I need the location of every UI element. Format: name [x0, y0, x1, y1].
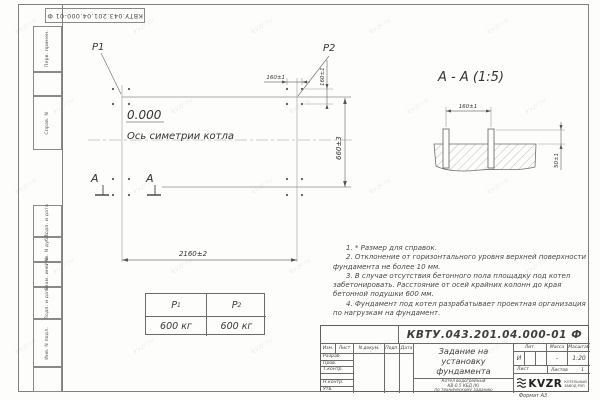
tb-scale-value: 1:20	[567, 352, 590, 366]
section-view-title: А - А (1:5)	[437, 70, 504, 85]
tb-logo-text: KVZR	[528, 378, 562, 390]
p2-label: P2	[323, 43, 335, 54]
note-1: 1. * Размер для справок.	[333, 244, 591, 253]
tb-col-divider-3	[399, 354, 400, 393]
symmetry-axis-label: Ось симетрии котла	[127, 131, 234, 142]
loads-table: P1 P2 600 кг 600 кг	[145, 293, 265, 335]
tb-col-divider-2	[384, 354, 385, 393]
section-mark-a-left: А	[90, 172, 99, 185]
tb-logo-area: KVZR КОТЕЛЬНЫЙ ЗАВОД РЭП	[513, 374, 590, 393]
title-block-topleft-empty	[321, 326, 398, 344]
p1-leader-line	[101, 53, 121, 94]
tb-document-title: Задание на установку фундамента	[413, 344, 513, 378]
note-2: 2. Отклонение от горизонтального уровня …	[333, 253, 591, 272]
title-block: КВТУ.043.201.04.000-01 Ф Изм. Лист N док…	[320, 325, 589, 392]
elevation-label: 0.000	[127, 108, 162, 122]
loads-header-p2: P2	[206, 294, 266, 316]
loads-value-p2: 600 кг	[206, 316, 266, 336]
tb-sheet-label: Лист	[513, 366, 547, 374]
tb-sheets-label: Листов	[551, 368, 568, 373]
tb-header-data: Дата	[399, 344, 413, 354]
tb-logo-caption: КОТЕЛЬНЫЙ ЗАВОД РЭП	[564, 380, 586, 388]
p1-label: P1	[92, 42, 104, 53]
sec-dim50-text: 50±1	[554, 153, 560, 168]
dim-bolty-text: 160±1	[320, 67, 326, 86]
format-label: Формат А3	[498, 393, 568, 399]
note-3: 3. В случае отсутствия бетонного пола пл…	[333, 272, 591, 300]
drawing-sheet: КВТУ.043.201.04.000-01 Ф Перв. примен. С…	[0, 0, 600, 400]
boiler-coil-logo-icon	[517, 378, 526, 389]
tb-mass-label: Масса	[546, 344, 567, 352]
section-mark-a-right: А	[145, 172, 154, 185]
tb-lit-value: И	[513, 352, 524, 366]
dim-height-text: 660±3	[335, 136, 343, 160]
note-4: 4. Фундамент под котел разрабатывает про…	[333, 300, 591, 319]
loads-value-p1: 600 кг	[146, 316, 206, 336]
anchor-bolt-right	[488, 129, 494, 168]
tb-sheets-cell: Листов 1	[547, 366, 590, 374]
tb-scale-label: Масштаб	[567, 344, 590, 352]
tb-lit-cell-2	[524, 352, 535, 366]
tb-product-name: Котел водогрейный КВ-0.5 КБД (К) по техн…	[413, 378, 513, 393]
technical-notes: 1. * Размер для справок. 2. Отклонение о…	[333, 244, 591, 318]
tb-mass-value: -	[546, 352, 567, 366]
bolt-dots	[112, 88, 303, 196]
sec-dim-text: 160±1	[459, 104, 478, 110]
anchor-bolt-left	[443, 129, 449, 168]
title-block-designation: КВТУ.043.201.04.000-01 Ф	[398, 326, 590, 344]
tb-header-ndokum: N докум.	[353, 344, 384, 354]
dim-boltx-text: 160±1	[266, 75, 285, 81]
tb-lit-cell-3	[535, 352, 546, 366]
dim-width-text: 2160±2	[179, 250, 208, 258]
tb-header-list: Лист	[335, 344, 353, 354]
tb-col-divider-1	[353, 354, 354, 393]
tb-lit-label: Лит.	[513, 344, 546, 352]
tb-sheets-value: 1	[581, 368, 584, 373]
tb-header-podp: Подп.	[384, 344, 399, 354]
tb-row-utv: Утв.	[321, 387, 353, 394]
tb-header-izm: Изм.	[321, 344, 335, 354]
loads-header-p1: P1	[146, 294, 206, 316]
